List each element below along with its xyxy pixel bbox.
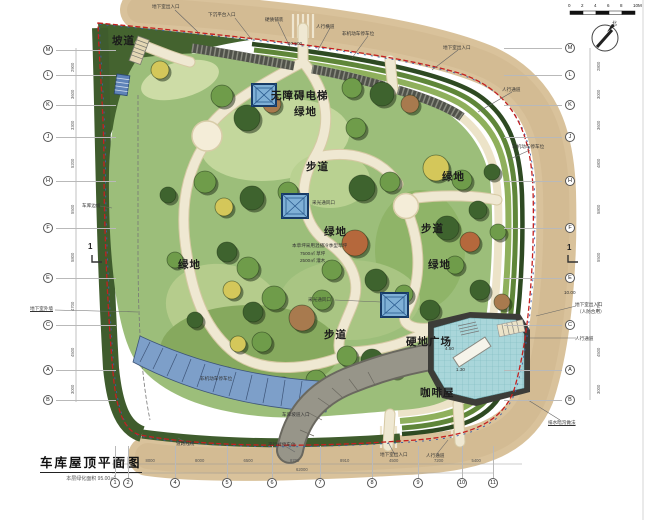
garage-roof-plan-sheet: 车库屋顶平面图 本层绿化面积 95.00㎡ 北 坡道无障碍电梯绿地步道绿地绿地步… (0, 0, 648, 520)
scale-number: 0 (568, 3, 571, 8)
dim-value: 8910 (340, 458, 349, 463)
dim-total: 62000 (296, 467, 308, 472)
grid-bubble-A: A (565, 365, 575, 375)
grid-bubble-10: 10 (457, 478, 467, 488)
dim-value: 3000 (596, 90, 601, 99)
grid-bubble-J: J (565, 132, 575, 142)
grid-line (504, 75, 562, 76)
annotation: 排水暗沟做法 (548, 420, 576, 426)
grid-bubble-A: A (43, 365, 53, 375)
scale-number: 10M (633, 3, 642, 8)
annotation: 硬质铺装 (265, 17, 283, 23)
annotation: 车库坡道入口 (282, 412, 310, 418)
grid-line (175, 446, 176, 478)
grid-bubble-L: L (565, 70, 575, 80)
dim-value: 6500 (244, 458, 253, 463)
scale-number: 4 (594, 3, 597, 8)
annotation: 4.50 (445, 346, 454, 351)
grid-bubble-4: 4 (170, 478, 180, 488)
grid-bubble-H: H (565, 176, 575, 186)
dim-value: 8000 (195, 458, 204, 463)
dim-value: 3000 (70, 385, 75, 394)
dim-value: 8700 (290, 458, 299, 463)
dim-value: 3600 (70, 90, 75, 99)
grid-bubble-F: F (43, 223, 53, 233)
section-marker: 1 (567, 243, 571, 252)
dim-value: 5200 (70, 159, 75, 168)
grid-line (128, 446, 129, 478)
grid-bubble-C: C (565, 320, 575, 330)
annotation: 非机动车停车位 (200, 376, 232, 382)
grid-line (504, 400, 562, 401)
grid-line (504, 228, 562, 229)
north-label: 北 (612, 20, 617, 27)
annotation: 10.500 (288, 41, 302, 46)
grid-bubble-B: B (565, 395, 575, 405)
grid-line (504, 325, 562, 326)
grid-line (56, 75, 116, 76)
grid-bubble-C: C (43, 320, 53, 330)
annotation: 地下室出入口 (152, 4, 180, 10)
scale-number: 2 (581, 3, 584, 8)
grid-line (504, 181, 562, 182)
plan-label: 绿地 (178, 257, 201, 272)
plan-label: 步道 (306, 159, 329, 174)
annotation: 地下室出入口 (443, 45, 471, 51)
grid-line (504, 137, 562, 138)
grid-line (56, 278, 116, 279)
dim-value: 4700 (596, 301, 601, 310)
annotation: 非机动车停车位 (342, 31, 374, 37)
grid-line (418, 446, 419, 478)
dim-value: 8000 (146, 458, 155, 463)
section-marker: 1 (88, 242, 92, 251)
dim-value: 4500 (389, 458, 398, 463)
grid-line (504, 278, 562, 279)
plan-label: 坡道 (112, 33, 135, 48)
dim-value: 3600 (596, 121, 601, 130)
annotation: 地下室外墙 (30, 306, 53, 312)
text-overlay: 车库屋顶平面图 本层绿化面积 95.00㎡ 北 坡道无障碍电梯绿地步道绿地绿地步… (0, 0, 648, 520)
grid-line (56, 50, 116, 51)
grid-line (56, 137, 116, 138)
dim-value: 4700 (70, 301, 75, 310)
annotation: 非机动车停车位 (512, 144, 544, 150)
dim-value: 4500 (70, 347, 75, 356)
grid-line (56, 325, 116, 326)
plan-label: 绿地 (324, 224, 347, 239)
grid-line (504, 48, 562, 49)
annotation: 10.00 (564, 290, 576, 295)
grid-bubble-8: 8 (367, 478, 377, 488)
dim-value: 5800 (70, 253, 75, 262)
annotation: 下沉平台入口 (208, 12, 236, 18)
annotation: 1.30 (456, 367, 465, 372)
dim-value: 7200 (434, 458, 443, 463)
dim-value: 3000 (596, 385, 601, 394)
dim-value: 2800 (596, 61, 601, 70)
annotation: 人行横道 (316, 24, 334, 30)
plan-label: 无障碍电梯 (271, 88, 329, 103)
grid-bubble-11: 11 (488, 478, 498, 488)
grid-bubble-5: 5 (222, 478, 232, 488)
grid-line (56, 370, 116, 371)
grid-bubble-E: E (43, 273, 53, 283)
grid-line (372, 446, 373, 478)
annotation: 人行通道 (575, 336, 593, 342)
dim-value: 5400 (472, 458, 481, 463)
grid-bubble-K: K (565, 100, 575, 110)
plan-label: 绿地 (442, 169, 465, 184)
annotation: 采光通风口 (308, 297, 331, 303)
grid-bubble-J: J (43, 132, 53, 142)
grid-line (227, 446, 228, 478)
grid-line (504, 105, 562, 106)
grid-bubble-F: F (565, 223, 575, 233)
dim-value: 3300 (70, 121, 75, 130)
grid-line (56, 105, 116, 106)
grid-bubble-B: B (43, 395, 53, 405)
grid-bubble-M: M (565, 43, 575, 53)
annotation: 车库边线 (82, 203, 100, 209)
grid-bubble-L: L (43, 70, 53, 80)
grid-bubble-K: K (43, 100, 53, 110)
grid-bubble-7: 7 (315, 478, 325, 488)
grid-bubble-1: 1 (110, 478, 120, 488)
grid-bubble-2: 2 (123, 478, 133, 488)
dim-value: 5800 (596, 204, 601, 213)
annotation: 7500㎡ 草坪 (300, 251, 325, 257)
grid-line (56, 181, 116, 182)
grid-line (56, 228, 116, 229)
plan-label: 咖啡屋 (420, 385, 455, 400)
dim-value: 4800 (596, 159, 601, 168)
grid-bubble-E: E (565, 273, 575, 283)
annotation: 2500㎡ 灌木 (300, 258, 325, 264)
grid-bubble-H: H (43, 176, 53, 186)
grid-bubble-9: 9 (413, 478, 423, 488)
grid-line (493, 446, 494, 478)
plan-label: 绿地 (428, 257, 451, 272)
annotation: 道路红线 (176, 441, 194, 447)
dim-value: 5500 (70, 204, 75, 213)
plan-label: 步道 (324, 327, 347, 342)
grid-line (462, 446, 463, 478)
dim-value: 4000 (116, 458, 125, 463)
grid-line (320, 446, 321, 478)
annotation: 采光通风口 (312, 200, 335, 206)
scale-number: 6 (607, 3, 610, 8)
dim-value: 4500 (596, 347, 601, 356)
dim-value: 5500 (596, 253, 601, 262)
annotation: 本草坪采用混播冷季型草坪 (292, 243, 347, 249)
grid-bubble-6: 6 (267, 478, 277, 488)
annotation: 人行通道 (502, 87, 520, 93)
grid-line (272, 446, 273, 478)
dim-value: 2900 (70, 62, 75, 71)
grid-bubble-M: M (43, 45, 53, 55)
scale-number: 8 (620, 3, 623, 8)
grid-line (56, 400, 116, 401)
plan-label: 绿地 (294, 104, 317, 119)
plan-label: 步道 (421, 221, 444, 236)
drawing-title: 车库屋顶平面图 (40, 452, 142, 473)
grid-line (504, 370, 562, 371)
